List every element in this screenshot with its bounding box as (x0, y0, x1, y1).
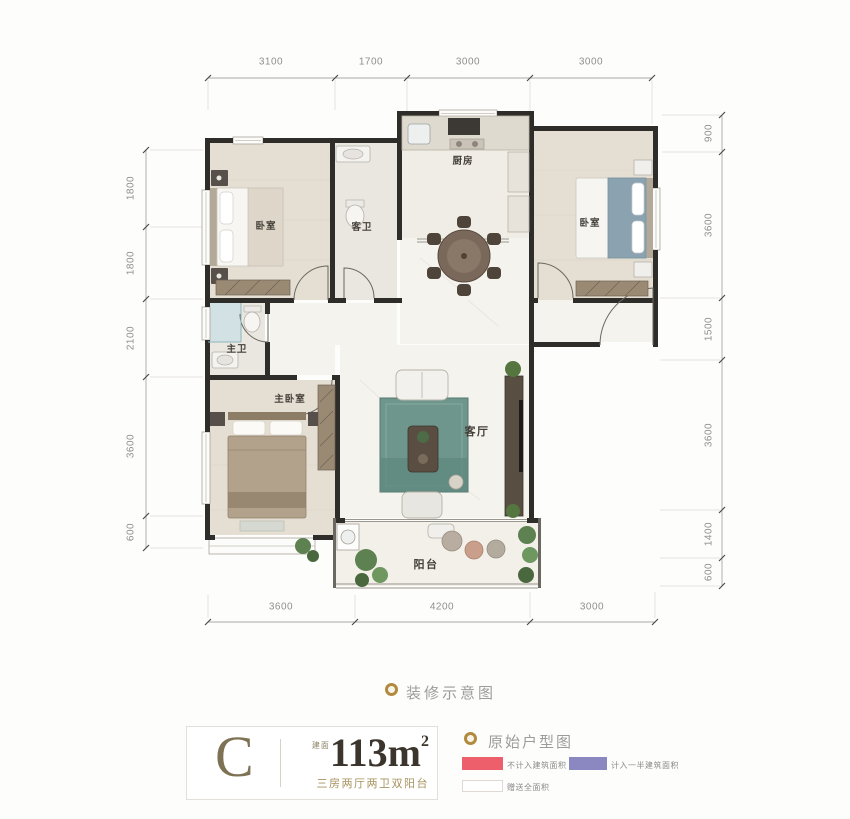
legend-swatch-red (462, 757, 503, 770)
legend-bullet-icon (464, 732, 477, 745)
dim-top-1: 1700 (359, 57, 383, 68)
legend-swatch-white (462, 780, 503, 792)
dim-right-0: 900 (704, 124, 715, 142)
dim-left-4: 600 (126, 523, 137, 541)
unit-area-exponent: 2 (421, 733, 429, 750)
legend-label-red: 不计入建筑面积 (507, 760, 567, 771)
dim-bottom-0: 3600 (269, 602, 293, 613)
dim-left-3: 3600 (126, 434, 137, 458)
room-label-bedroom-left: 卧室 (255, 218, 276, 232)
dim-left-0: 1800 (126, 176, 137, 200)
dim-right-2: 1500 (704, 317, 715, 341)
dim-right-4: 1400 (704, 522, 715, 546)
decor-bullet-icon (385, 683, 398, 696)
dim-right-1: 3600 (704, 213, 715, 237)
unit-card: C 建面113m2 三房两厅两卫双阳台 (186, 726, 438, 800)
unit-area-number: 113m (330, 730, 421, 775)
room-label-bedroom-right: 卧室 (579, 215, 600, 229)
room-label-master-bath: 主卫 (226, 341, 247, 355)
unit-type-letter: C (215, 723, 254, 790)
unit-area-prefix: 建面 (312, 741, 330, 750)
legend-swatch-purple (569, 757, 607, 770)
legend-label-white: 赠送全面积 (507, 782, 550, 793)
unit-card-divider (280, 739, 281, 787)
unit-area: 建面113m2 (291, 729, 429, 776)
dim-left-2: 2100 (126, 326, 137, 350)
floorplan-page: 3100 1700 3000 3000 1800 1800 2100 3600 … (0, 0, 850, 819)
dim-bottom-1: 4200 (430, 602, 454, 613)
room-label-kitchen: 厨房 (452, 153, 473, 167)
dim-top-2: 3000 (456, 57, 480, 68)
legend-label-purple: 计入一半建筑面积 (611, 760, 679, 771)
dim-right-3: 3600 (704, 423, 715, 447)
dim-left-1: 1800 (126, 251, 137, 275)
dim-bottom-2: 3000 (580, 602, 604, 613)
room-label-guest-bath: 客卫 (351, 219, 372, 233)
room-label-living-room: 客厅 (465, 423, 490, 439)
unit-subtitle: 三房两厅两卫双阳台 (291, 775, 429, 791)
room-label-balcony: 阳台 (414, 556, 439, 572)
decor-caption: 装修示意图 (406, 682, 496, 703)
dim-right-5: 600 (704, 563, 715, 581)
dim-top-3: 3000 (579, 57, 603, 68)
room-label-master-bedroom: 主卧室 (274, 391, 306, 405)
legend-title: 原始户型图 (488, 731, 573, 752)
dim-top-0: 3100 (259, 57, 283, 68)
